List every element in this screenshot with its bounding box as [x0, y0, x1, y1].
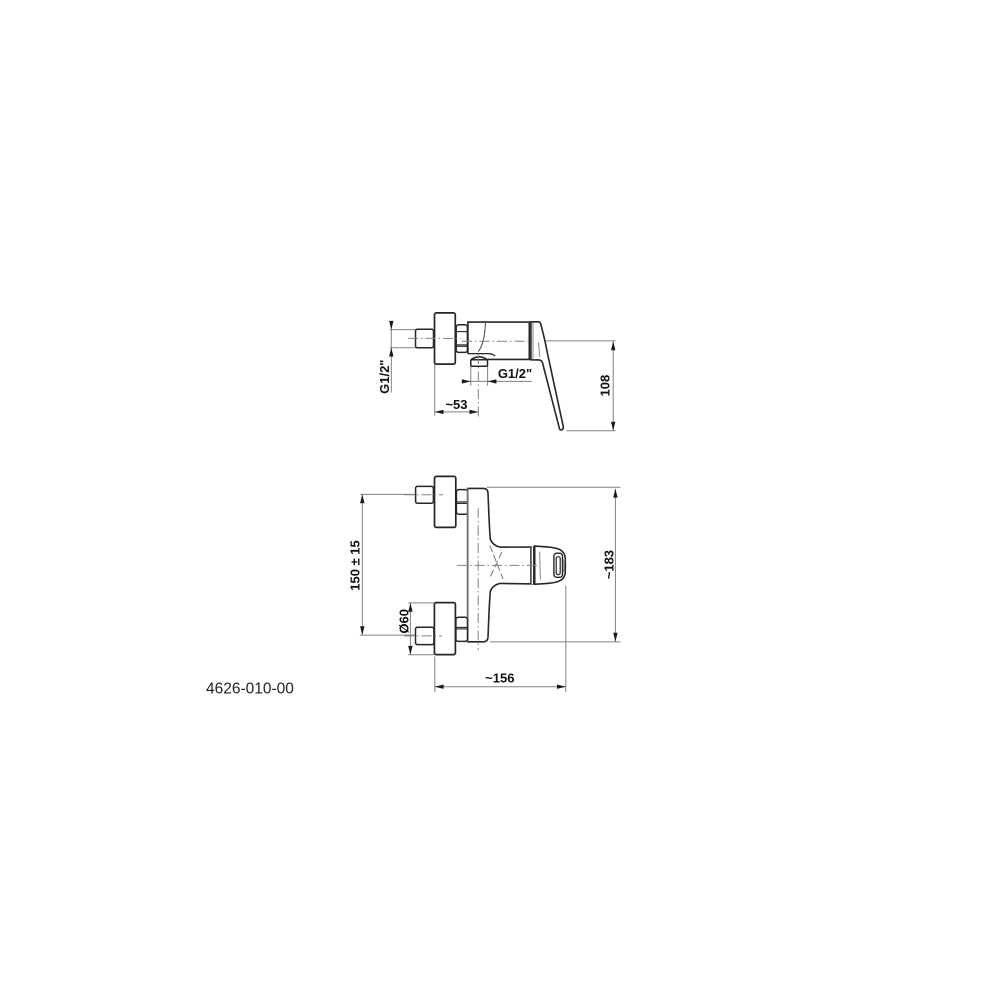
svg-text:G1/2": G1/2" [377, 360, 392, 394]
svg-text:4626-010-00: 4626-010-00 [206, 681, 294, 698]
svg-text:~183: ~183 [602, 550, 617, 579]
svg-text:G1/2": G1/2" [498, 366, 532, 381]
svg-text:~53: ~53 [445, 397, 467, 412]
svg-text:108: 108 [598, 375, 613, 397]
svg-text:150 ± 15: 150 ± 15 [348, 540, 363, 591]
svg-text:~156: ~156 [485, 671, 514, 686]
svg-text:Ø60: Ø60 [396, 609, 411, 634]
